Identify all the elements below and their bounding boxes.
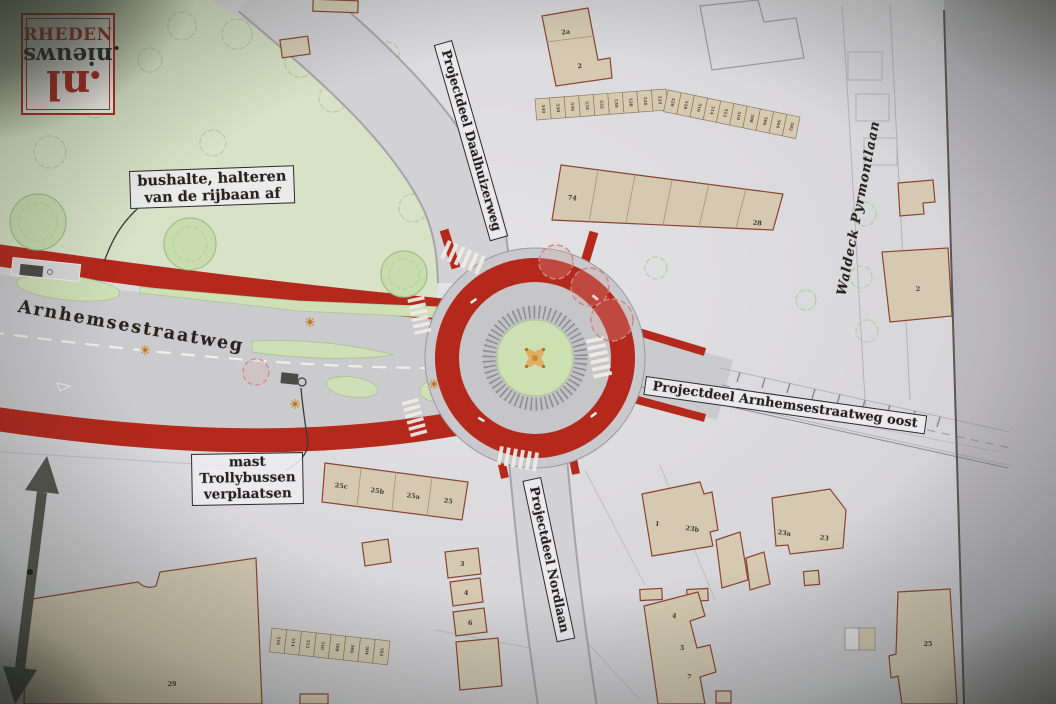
- building-25-tall: 25: [889, 589, 957, 704]
- house-number: 516: [276, 636, 282, 645]
- house-number: 532: [599, 100, 605, 109]
- building-two-tone: [845, 628, 875, 650]
- house-number: 506: [349, 644, 355, 653]
- house-number: 540: [541, 104, 547, 113]
- building: [746, 552, 770, 590]
- building: [280, 36, 310, 58]
- building-1-23b: 1 23b: [642, 482, 718, 556]
- building-29: 29: [24, 558, 262, 704]
- annotation-bushalte: bushalte, halteren van de rijbaan af: [129, 165, 295, 209]
- trolley-mast-block: [280, 372, 298, 385]
- logo-nl-text: nl: [46, 67, 90, 101]
- building-74-28: 74 28: [552, 165, 783, 230]
- building-2a-2: 2a 2: [542, 8, 612, 86]
- building: [300, 694, 328, 704]
- house-number: 536: [570, 102, 576, 111]
- house-number: 534: [584, 101, 590, 110]
- building-label: 2: [915, 285, 920, 293]
- annotation-mast: mast Trollybussen verplaatsen: [191, 452, 304, 506]
- plan-map: 2a 2 540538536534532530528526524 5205185…: [0, 0, 1056, 704]
- building-small-column: 3 4 6: [445, 548, 502, 690]
- building-25-row: 25c 25b 25a 25: [322, 463, 468, 520]
- building-2-right: 2: [882, 248, 952, 322]
- house-number: 508: [335, 643, 341, 652]
- building: [362, 539, 391, 566]
- cycle-path-stub: [585, 232, 594, 262]
- house-number: 538: [555, 103, 561, 112]
- building-23a-23: 23a 23: [772, 489, 846, 554]
- house-number: 504: [364, 646, 370, 655]
- house-number: 526: [643, 97, 649, 106]
- building: [313, 0, 358, 13]
- house-number: 528: [628, 98, 634, 107]
- house-row-north-east: 520518516514512510508506504502: [664, 90, 800, 139]
- building-label: 25: [923, 640, 933, 648]
- building: [640, 588, 663, 600]
- building-label: 25: [443, 496, 454, 505]
- house-number: 510: [320, 641, 326, 650]
- house-number: 502: [379, 648, 385, 657]
- photo-of-roundabout-plan: 2a 2 540538536534532530528526524 5205185…: [0, 0, 1056, 704]
- rhedennieuws-logo: RHEDEN nieuws nl: [21, 13, 115, 115]
- logo-dot: [91, 71, 99, 79]
- building-stepped-south: 4 5 7: [644, 592, 716, 704]
- house-row-north-west: 540538536534532530528526524: [535, 89, 668, 120]
- building-label: 28: [752, 218, 762, 227]
- annotation-mast-line3: verplaatsen: [200, 486, 296, 504]
- house-row-south-west: 516514512510508506504502: [269, 628, 390, 665]
- house-number: 512: [305, 639, 311, 648]
- house-number: 524: [657, 95, 663, 104]
- building-label: 23: [819, 533, 830, 542]
- building-label: 74: [567, 193, 577, 202]
- building-label: 29: [167, 680, 177, 688]
- roundabout: [425, 248, 645, 468]
- paper-edge: [944, 0, 1056, 704]
- building: [803, 570, 819, 585]
- building: [716, 691, 731, 703]
- outline-building: [700, 0, 804, 70]
- house-number: 514: [290, 638, 296, 647]
- building: [716, 532, 748, 588]
- building: [898, 180, 935, 216]
- house-number: 530: [614, 99, 620, 108]
